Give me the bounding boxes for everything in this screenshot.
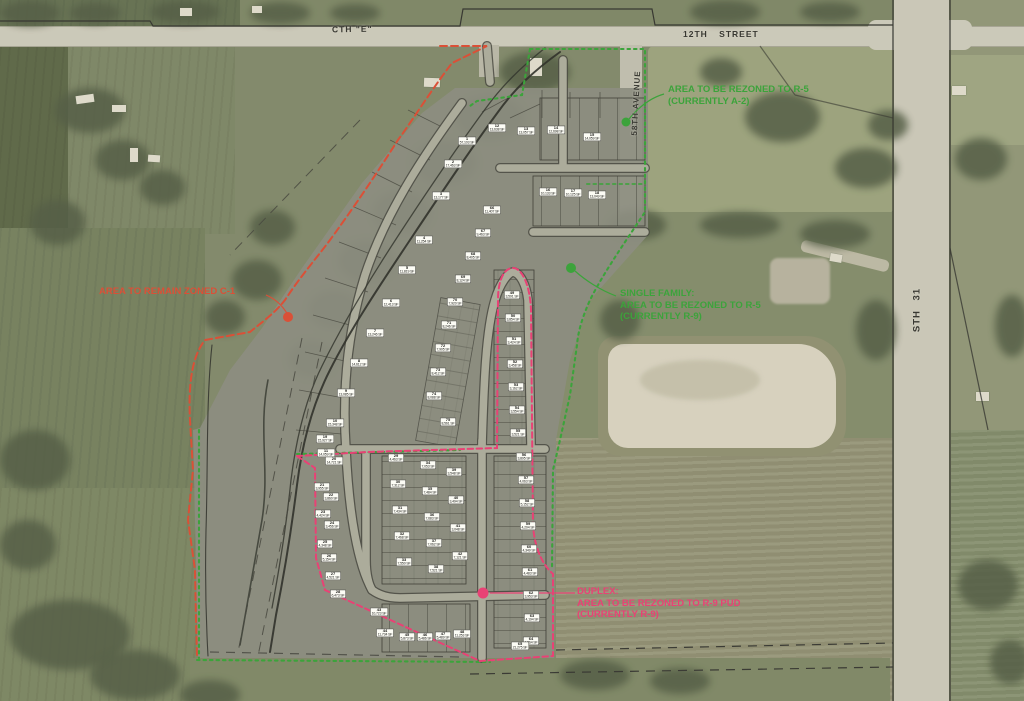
- lot-label: 313,177 SF: [432, 192, 450, 201]
- lot-area: 4,194 SF: [525, 618, 538, 622]
- lot-label: 1915,927 SF: [316, 435, 334, 444]
- annotation-c1-west: AREA TO REMAIN ZONED C-1: [99, 286, 235, 298]
- lot-area: 7,484 SF: [423, 491, 436, 495]
- lot-area: 4,348 SF: [318, 544, 331, 548]
- lot-label: 393,548 SF: [446, 468, 462, 477]
- lot-area: 4,463 SF: [389, 458, 402, 462]
- lot-label: 1313,057 SF: [517, 127, 535, 136]
- lot-label: 493,591 SF: [504, 291, 520, 300]
- lot-label: 634,194 SF: [524, 614, 540, 623]
- lot-label: 217,463 SF: [444, 160, 462, 169]
- lot-label: 213,955 SF: [314, 483, 330, 492]
- lot-label: 748,088 SF: [426, 392, 442, 401]
- lot-area: 8,124 SF: [456, 279, 469, 283]
- lot-area: 10,723 SF: [372, 612, 387, 616]
- lot-area: 4,349 SF: [522, 549, 535, 553]
- lot-label: 1213,638 SF: [488, 124, 506, 133]
- lot-label: 698,124 SF: [455, 275, 471, 284]
- lot-area: 3,424 SF: [507, 341, 520, 345]
- lot-area: 7,434 SF: [393, 510, 406, 514]
- lot-label: 367,683 SF: [424, 513, 440, 522]
- lot-area: 7,550 SF: [397, 562, 410, 566]
- lot-area: 3,456 SF: [325, 525, 338, 529]
- lot-area: 5,873 SF: [400, 637, 413, 641]
- lot-area: 11,254 SF: [417, 240, 432, 244]
- lot-area: 7,905 SF: [436, 348, 449, 352]
- lot-label: 327,468 SF: [394, 532, 410, 541]
- lot-area: 13,057 SF: [519, 131, 534, 135]
- lot-label: 604,349 SF: [521, 545, 537, 554]
- lot-label: 403,494 SF: [448, 496, 464, 505]
- road-label-12th-street: 12TH STREET: [683, 29, 759, 39]
- lot-label: 614,483 SF: [522, 568, 538, 577]
- lot-area: 5,154 SF: [322, 558, 335, 562]
- lot-area: 5,486 SF: [418, 637, 431, 641]
- lot-label: 543,554 SF: [509, 406, 525, 415]
- lot-label: 523,458 SF: [507, 360, 523, 369]
- lot-area: 3,854 SF: [506, 318, 519, 322]
- lot-area: 8,405 SF: [466, 256, 479, 260]
- lot-label: 1813,049 SF: [588, 191, 606, 200]
- lot-area: 3,895 SF: [517, 457, 530, 461]
- road-label-cth-e: CTH "E": [332, 24, 373, 35]
- lot-area: 4,521 SF: [326, 576, 339, 580]
- lot-label: 574,063 SF: [518, 476, 534, 485]
- lot-label: 465,486 SF: [417, 633, 433, 642]
- lot-label: 254,348 SF: [317, 540, 333, 549]
- lot-area: 8,246 SF: [442, 325, 455, 329]
- annotation-r5-north: AREA TO BE REZONED TO R-5 (CURRENTLY A-2…: [668, 84, 809, 107]
- lot-label: 814,612 SF: [350, 359, 368, 368]
- lot-label: 357,484 SF: [422, 487, 438, 496]
- lot-area: 13,638 SF: [490, 128, 505, 132]
- lot-label: 411,254 SF: [415, 236, 433, 245]
- lot-label: 688,405 SF: [465, 252, 481, 261]
- lot-area: 10,125 SF: [566, 193, 581, 197]
- annotation-line: (CURRENTLY A-2): [668, 96, 809, 108]
- lot-area: 5,489 SF: [436, 636, 449, 640]
- lot-label: 4310,723 SF: [370, 608, 388, 617]
- lot-label: 1412,698 SF: [547, 126, 565, 135]
- lot-label: 594,204 SF: [520, 522, 536, 531]
- lot-area: 14,612 SF: [352, 363, 367, 367]
- lot-area: 3,953 SF: [524, 595, 537, 599]
- aerial-rezoning-map: 157,103 SF217,463 SF313,177 SF411,254 SF…: [0, 0, 1024, 701]
- annotation-line: SINGLE FAMILY:: [620, 288, 761, 300]
- lot-area: 14,721 SF: [327, 461, 342, 465]
- lot-area: 4,483 SF: [523, 572, 536, 576]
- lot-area: 3,494 SF: [449, 500, 462, 504]
- lot-area: 9,463 SF: [476, 233, 489, 237]
- lot-area: 8,561 SF: [441, 422, 454, 426]
- lot-area: 8,088 SF: [427, 396, 440, 400]
- lot-label: 243,456 SF: [324, 521, 340, 530]
- lot-label: 6611,407 SF: [483, 206, 501, 215]
- lot-area: 11,407 SF: [485, 210, 500, 214]
- lot-label: 913,085 SF: [337, 389, 355, 398]
- lot-area: 11,734 SF: [378, 633, 393, 637]
- lot-area: 3,955 SF: [315, 487, 328, 491]
- lot-label: 679,463 SF: [475, 229, 491, 238]
- lot-area: 8,412 SF: [431, 372, 444, 376]
- annotation-line: AREA TO REMAIN ZONED C-1: [99, 286, 235, 298]
- lot-area: 4,063 SF: [519, 480, 532, 484]
- lot-area: 3,548 SF: [447, 472, 460, 476]
- lot-area: 6,473 SF: [331, 594, 344, 598]
- lot-area: 3,591 SF: [505, 295, 518, 299]
- lot-area: 12,698 SF: [549, 130, 564, 134]
- lot-label: 533,162 SF: [508, 383, 524, 392]
- lot-area: 11,253 SF: [455, 634, 470, 638]
- lot-area: 3,458 SF: [508, 364, 521, 368]
- lot-label: 274,521 SF: [325, 572, 341, 581]
- lot-label: 223,860 SF: [323, 493, 339, 502]
- lot-label-layer: 157,103 SF217,463 SF313,177 SF411,254 SF…: [0, 0, 1024, 701]
- lot-area: 3,048 SF: [451, 528, 464, 532]
- lot-area: 13,246 SF: [368, 333, 383, 337]
- lot-label: 503,854 SF: [505, 314, 521, 323]
- lot-label: 265,154 SF: [321, 554, 337, 563]
- lot-label: 585,152 SF: [519, 499, 535, 508]
- road-label-sth-31: STH 31: [912, 288, 923, 332]
- annotation-line: AREA TO BE REZONED TO R-5: [620, 300, 761, 312]
- lot-label: 347,053 SF: [420, 461, 436, 470]
- annotation-r5-single-family: SINGLE FAMILY: AREA TO BE REZONED TO R-5…: [620, 288, 761, 323]
- lot-label: 337,550 SF: [396, 558, 412, 567]
- lot-label: 718,246 SF: [441, 321, 457, 330]
- lot-label: 294,463 SF: [388, 454, 404, 463]
- lot-label: 513,424 SF: [506, 337, 522, 346]
- lot-area: 7,312 SF: [391, 484, 404, 488]
- lot-label: 4411,734 SF: [376, 629, 394, 638]
- lot-label: 234,424 SF: [315, 510, 331, 519]
- lot-area: 3,554 SF: [510, 410, 523, 414]
- lot-area: 13,177 SF: [434, 196, 449, 200]
- lot-label: 307,312 SF: [390, 480, 406, 489]
- lot-label: 2014,721 SF: [325, 457, 343, 466]
- lot-area: 7,468 SF: [395, 536, 408, 540]
- lot-label: 455,873 SF: [399, 633, 415, 642]
- lot-label: 738,412 SF: [430, 368, 446, 377]
- lot-label: 563,895 SF: [516, 453, 532, 462]
- lot-label: 612,413 SF: [382, 299, 400, 308]
- lot-label: 427,121 SF: [452, 552, 468, 561]
- annotation-line: AREA TO BE REZONED TO R-9 PUD: [577, 598, 740, 610]
- lot-label: 157,103 SF: [458, 137, 476, 146]
- lot-area: 14,059 SF: [585, 137, 600, 141]
- annotation-line: (CURRENTLY R-9): [620, 311, 761, 323]
- lot-label: 727,905 SF: [435, 344, 451, 353]
- lot-label: 286,473 SF: [330, 590, 346, 599]
- lot-area: 5,152 SF: [520, 503, 533, 507]
- lot-area: 3,860 SF: [324, 497, 337, 501]
- lot-area: 15,927 SF: [318, 439, 333, 443]
- lot-area: 7,053 SF: [421, 465, 434, 469]
- lot-area: 3,162 SF: [509, 387, 522, 391]
- lot-label: 511,819 SF: [398, 266, 416, 275]
- lot-label: 387,521 SF: [428, 565, 444, 574]
- lot-label: 707,920 SF: [447, 298, 463, 307]
- lot-area: 17,463 SF: [446, 164, 461, 168]
- lot-area: 7,521 SF: [429, 569, 442, 573]
- lot-area: 57,103 SF: [460, 141, 475, 145]
- lot-area: 21,275 SF: [513, 646, 528, 650]
- lot-label: 623,953 SF: [523, 591, 539, 600]
- lot-area: 7,062 SF: [427, 543, 440, 547]
- lot-area: 13,049 SF: [590, 195, 605, 199]
- lot-label: 758,561 SF: [440, 418, 456, 427]
- lot-area: 15,348 SF: [328, 423, 343, 427]
- lot-area: 10,133 SF: [541, 192, 556, 196]
- lot-area: 7,920 SF: [448, 302, 461, 306]
- lot-label: 1610,133 SF: [539, 188, 557, 197]
- lot-label: 553,521 SF: [510, 429, 526, 438]
- lot-label: 1015,348 SF: [326, 419, 344, 428]
- annotation-r9-duplex: DUPLEX: AREA TO BE REZONED TO R-9 PUD (C…: [577, 586, 740, 621]
- lot-label: 413,048 SF: [450, 524, 466, 533]
- lot-label: 1710,125 SF: [564, 189, 582, 198]
- lot-area: 4,204 SF: [521, 526, 534, 530]
- lot-label: 6521,275 SF: [511, 642, 529, 651]
- lot-area: 7,683 SF: [425, 517, 438, 521]
- annotation-line: AREA TO BE REZONED TO R-5: [668, 84, 809, 96]
- lot-area: 7,121 SF: [453, 556, 466, 560]
- lot-label: 377,062 SF: [426, 539, 442, 548]
- lot-label: 4811,253 SF: [453, 630, 471, 639]
- annotation-line: (CURRENTLY R-9): [577, 609, 740, 621]
- lot-area: 13,085 SF: [339, 393, 354, 397]
- lot-label: 317,434 SF: [392, 506, 408, 515]
- lot-area: 11,819 SF: [400, 270, 415, 274]
- lot-label: 713,246 SF: [366, 329, 384, 338]
- lot-area: 12,413 SF: [384, 303, 399, 307]
- lot-label: 475,489 SF: [435, 632, 451, 641]
- lot-label: 1514,059 SF: [583, 133, 601, 142]
- annotation-line: DUPLEX:: [577, 586, 740, 598]
- lot-area: 3,521 SF: [511, 433, 524, 437]
- lot-area: 4,424 SF: [316, 514, 329, 518]
